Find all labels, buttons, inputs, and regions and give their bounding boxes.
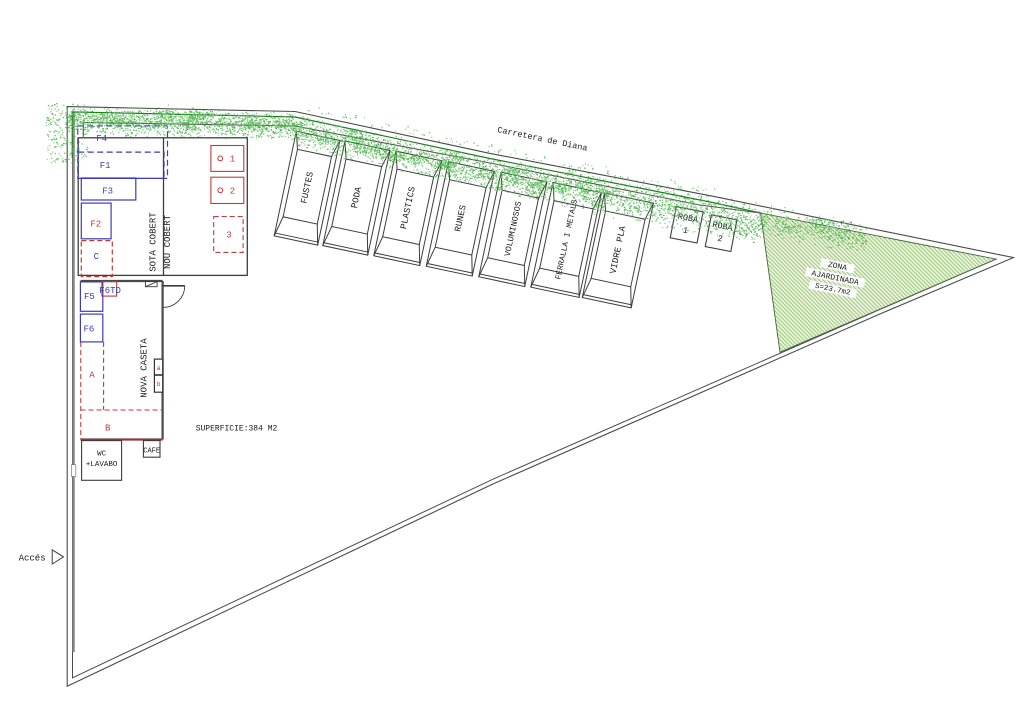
svg-text:Accés: Accés	[19, 554, 46, 564]
svg-text:b: b	[157, 381, 161, 388]
svg-text:F2: F2	[90, 220, 101, 230]
svg-text:NOU COBERT: NOU COBERT	[163, 214, 173, 269]
svg-text:F3: F3	[102, 186, 113, 196]
svg-text:F1: F1	[100, 161, 111, 171]
svg-text:+LAVABO: +LAVABO	[86, 461, 118, 469]
svg-text:F4: F4	[96, 134, 107, 144]
svg-text:F5: F5	[84, 292, 95, 302]
svg-text:B: B	[105, 424, 111, 434]
svg-text:WC: WC	[97, 451, 107, 459]
svg-text:CAFE: CAFE	[143, 448, 160, 456]
svg-text:1: 1	[230, 155, 235, 165]
svg-text:C: C	[94, 252, 100, 262]
svg-text:SOTA COBERT: SOTA COBERT	[148, 212, 158, 272]
svg-text:a: a	[157, 365, 161, 372]
svg-text:2: 2	[230, 187, 235, 197]
svg-text:A: A	[89, 371, 95, 381]
svg-text:F6: F6	[83, 325, 94, 335]
svg-text:NOVA CASETA: NOVA CASETA	[140, 338, 150, 398]
svg-text:3: 3	[226, 231, 231, 241]
svg-text:SUPERFICIE:384 M2: SUPERFICIE:384 M2	[196, 425, 278, 434]
svg-text:F6TD: F6TD	[99, 286, 121, 296]
